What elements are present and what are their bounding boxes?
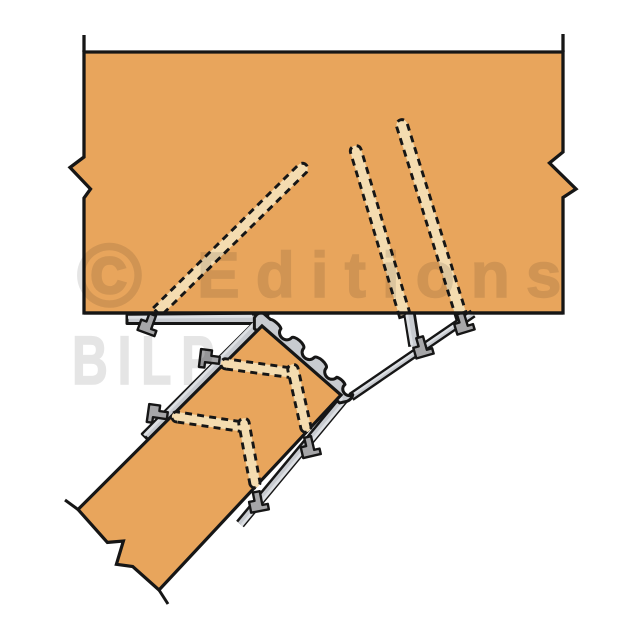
svg-text:BILP: BILP [72, 322, 224, 399]
svg-text:Editions: Editions [197, 239, 577, 311]
svg-text:©: © [77, 226, 142, 325]
